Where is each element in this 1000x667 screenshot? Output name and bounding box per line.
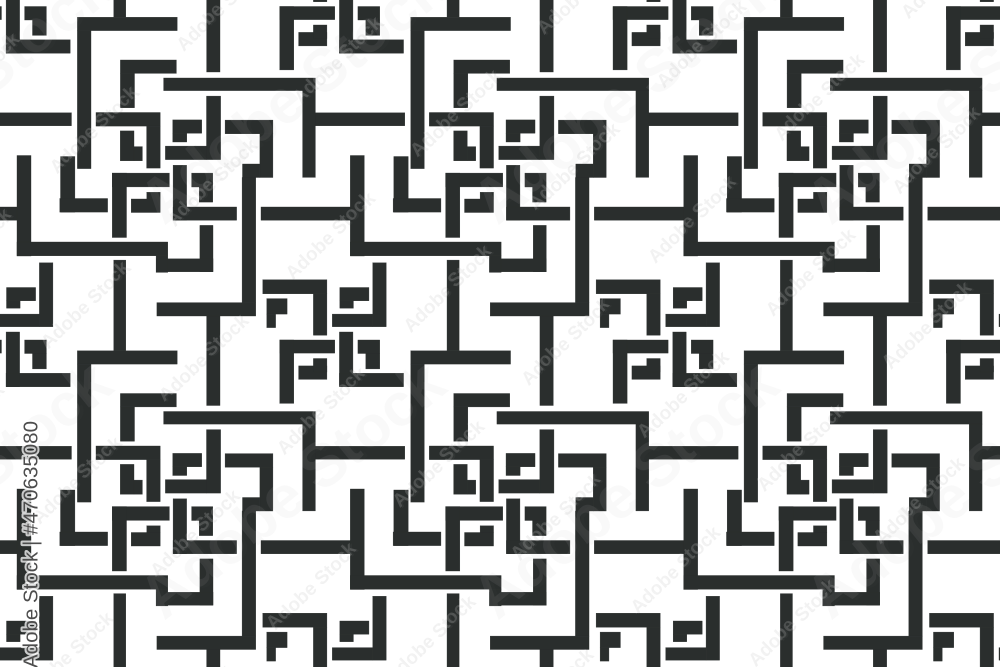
svg-text:Adobe Stock | #470635080: Adobe Stock | #470635080 (20, 421, 43, 667)
